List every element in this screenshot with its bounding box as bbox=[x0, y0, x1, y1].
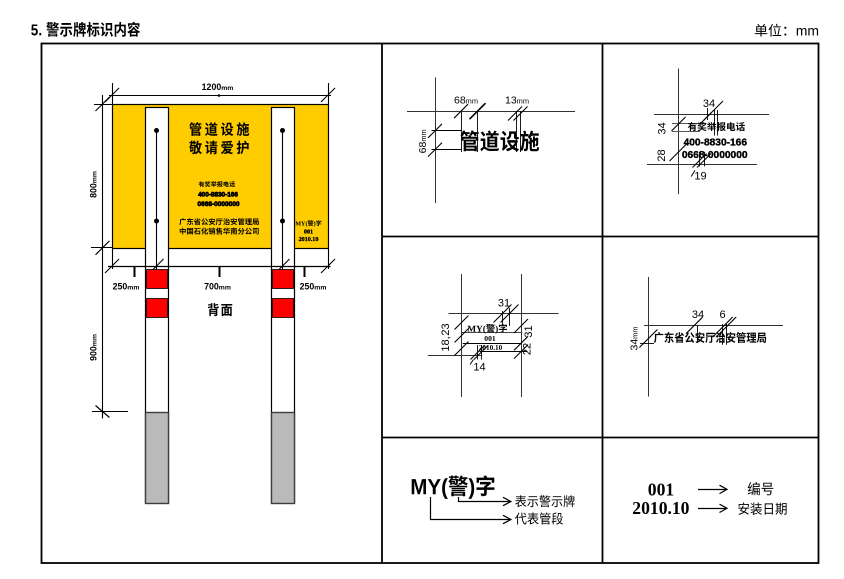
svg-text:900: 900 bbox=[89, 346, 99, 361]
svg-text:2010.10: 2010.10 bbox=[299, 237, 319, 243]
svg-text:6: 6 bbox=[719, 309, 725, 321]
svg-text:22: 22 bbox=[522, 343, 534, 355]
svg-text:2010.10: 2010.10 bbox=[632, 498, 689, 518]
svg-text:28: 28 bbox=[656, 149, 668, 161]
svg-text:18,: 18, bbox=[440, 336, 452, 351]
svg-text:001: 001 bbox=[648, 480, 674, 500]
svg-text:001: 001 bbox=[484, 334, 496, 343]
svg-text:mm: mm bbox=[314, 284, 326, 291]
svg-text:31: 31 bbox=[498, 298, 510, 310]
svg-text:mm: mm bbox=[419, 129, 428, 141]
svg-text:23: 23 bbox=[440, 323, 452, 335]
svg-text:34: 34 bbox=[657, 122, 669, 134]
svg-text:mm: mm bbox=[92, 171, 99, 183]
svg-text:800: 800 bbox=[89, 183, 99, 198]
svg-text:mm: mm bbox=[631, 326, 640, 338]
svg-text:68: 68 bbox=[417, 141, 429, 153]
svg-text:400-8830-166: 400-8830-166 bbox=[684, 138, 748, 149]
svg-text:34: 34 bbox=[692, 309, 704, 321]
svg-text:2010.10: 2010.10 bbox=[479, 344, 503, 352]
svg-text:68: 68 bbox=[454, 94, 466, 106]
svg-text:1200: 1200 bbox=[202, 82, 222, 92]
svg-text:34: 34 bbox=[629, 339, 641, 351]
svg-text:13: 13 bbox=[505, 94, 517, 106]
svg-text:mm: mm bbox=[221, 85, 233, 92]
svg-text:mm: mm bbox=[92, 334, 99, 346]
svg-text:mm: mm bbox=[466, 96, 478, 105]
svg-text:34: 34 bbox=[703, 98, 715, 110]
svg-text:250: 250 bbox=[113, 281, 128, 291]
svg-text:31: 31 bbox=[523, 325, 535, 337]
svg-text:mm: mm bbox=[219, 284, 231, 291]
svg-text:19: 19 bbox=[694, 171, 706, 183]
svg-text:001: 001 bbox=[304, 230, 313, 236]
svg-text:14: 14 bbox=[473, 362, 485, 374]
svg-text:700: 700 bbox=[204, 281, 219, 291]
svg-text:0668-0000000: 0668-0000000 bbox=[682, 150, 748, 161]
svg-text:mm: mm bbox=[127, 284, 139, 291]
svg-text:mm: mm bbox=[517, 96, 529, 105]
svg-text:0668-0000000: 0668-0000000 bbox=[198, 201, 240, 208]
svg-text:250: 250 bbox=[300, 281, 315, 291]
svg-text:400-8830-166: 400-8830-166 bbox=[198, 191, 238, 198]
